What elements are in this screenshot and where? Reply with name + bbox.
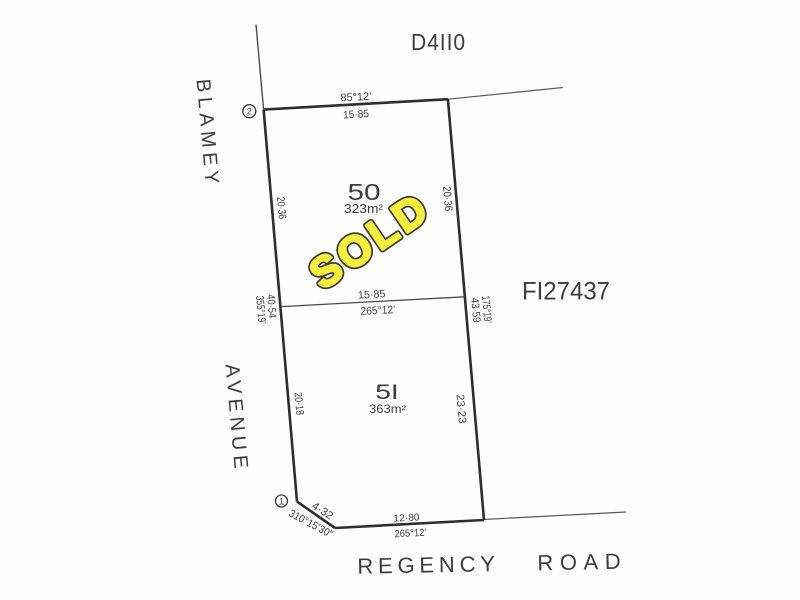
- svg-text:20·36: 20·36: [440, 186, 454, 212]
- svg-text:D4II0: D4II0: [411, 29, 466, 55]
- svg-text:20·36: 20·36: [274, 196, 288, 219]
- svg-text:355°19’: 355°19’: [253, 295, 267, 324]
- svg-text:FI27437: FI27437: [522, 278, 610, 306]
- svg-text:43·59: 43·59: [468, 297, 482, 323]
- svg-text:265°12’: 265°12’: [394, 528, 427, 541]
- svg-text:REGENCY: REGENCY: [357, 551, 500, 579]
- svg-text:1: 1: [279, 496, 284, 506]
- svg-text:15·85: 15·85: [358, 288, 386, 301]
- svg-text:85°12’: 85°12’: [340, 91, 372, 105]
- svg-text:2: 2: [247, 106, 252, 116]
- svg-text:12·80: 12·80: [393, 512, 420, 524]
- svg-text:23·23: 23·23: [454, 394, 469, 424]
- svg-text:20·18: 20·18: [292, 392, 306, 416]
- svg-text:ROAD: ROAD: [537, 549, 627, 576]
- svg-text:15·85: 15·85: [343, 108, 370, 121]
- svg-text:265°12’: 265°12’: [360, 304, 396, 318]
- svg-text:5I: 5I: [375, 381, 399, 404]
- svg-text:363m²: 363m²: [369, 404, 406, 416]
